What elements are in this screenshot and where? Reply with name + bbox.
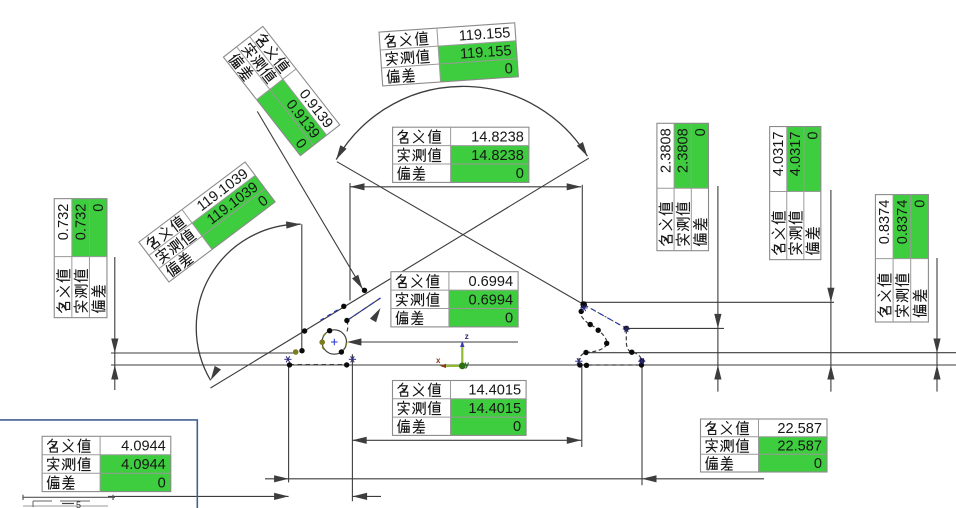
svg-text:14.8238: 14.8238 bbox=[471, 129, 524, 145]
svg-text:2.3808: 2.3808 bbox=[676, 128, 692, 173]
svg-text:x: x bbox=[436, 356, 441, 365]
svg-text:0: 0 bbox=[91, 204, 107, 212]
svg-text:4.0944: 4.0944 bbox=[121, 439, 166, 455]
svg-text:0: 0 bbox=[913, 200, 929, 208]
svg-text:0: 0 bbox=[158, 475, 166, 491]
svg-text:0: 0 bbox=[693, 128, 709, 136]
svg-text:14.4015: 14.4015 bbox=[468, 383, 521, 399]
svg-text:22.587: 22.587 bbox=[777, 439, 822, 455]
svg-text:22.587: 22.587 bbox=[777, 421, 822, 437]
svg-text:4.0317: 4.0317 bbox=[788, 132, 804, 177]
svg-text:0.8374: 0.8374 bbox=[877, 200, 893, 245]
svg-text:z: z bbox=[465, 332, 469, 341]
svg-text:4.0944: 4.0944 bbox=[121, 457, 166, 473]
svg-text:0: 0 bbox=[814, 456, 822, 472]
svg-text:5: 5 bbox=[76, 500, 81, 508]
svg-text:0: 0 bbox=[516, 166, 524, 182]
svg-text:4.0317: 4.0317 bbox=[771, 132, 787, 177]
svg-text:0: 0 bbox=[505, 311, 513, 327]
svg-text:0.732: 0.732 bbox=[74, 204, 90, 241]
svg-text:0.732: 0.732 bbox=[56, 204, 72, 241]
svg-text:14.4015: 14.4015 bbox=[468, 401, 521, 417]
svg-text:14.8238: 14.8238 bbox=[471, 148, 524, 164]
svg-text:0.8374: 0.8374 bbox=[895, 200, 911, 245]
svg-text:y: y bbox=[465, 360, 470, 369]
svg-text:2.3808: 2.3808 bbox=[659, 128, 675, 173]
svg-text:0.6994: 0.6994 bbox=[468, 292, 513, 308]
svg-text:0: 0 bbox=[805, 132, 821, 140]
svg-text:0: 0 bbox=[513, 419, 521, 435]
svg-text:0.6994: 0.6994 bbox=[468, 274, 513, 290]
svg-text:0: 0 bbox=[504, 61, 513, 78]
